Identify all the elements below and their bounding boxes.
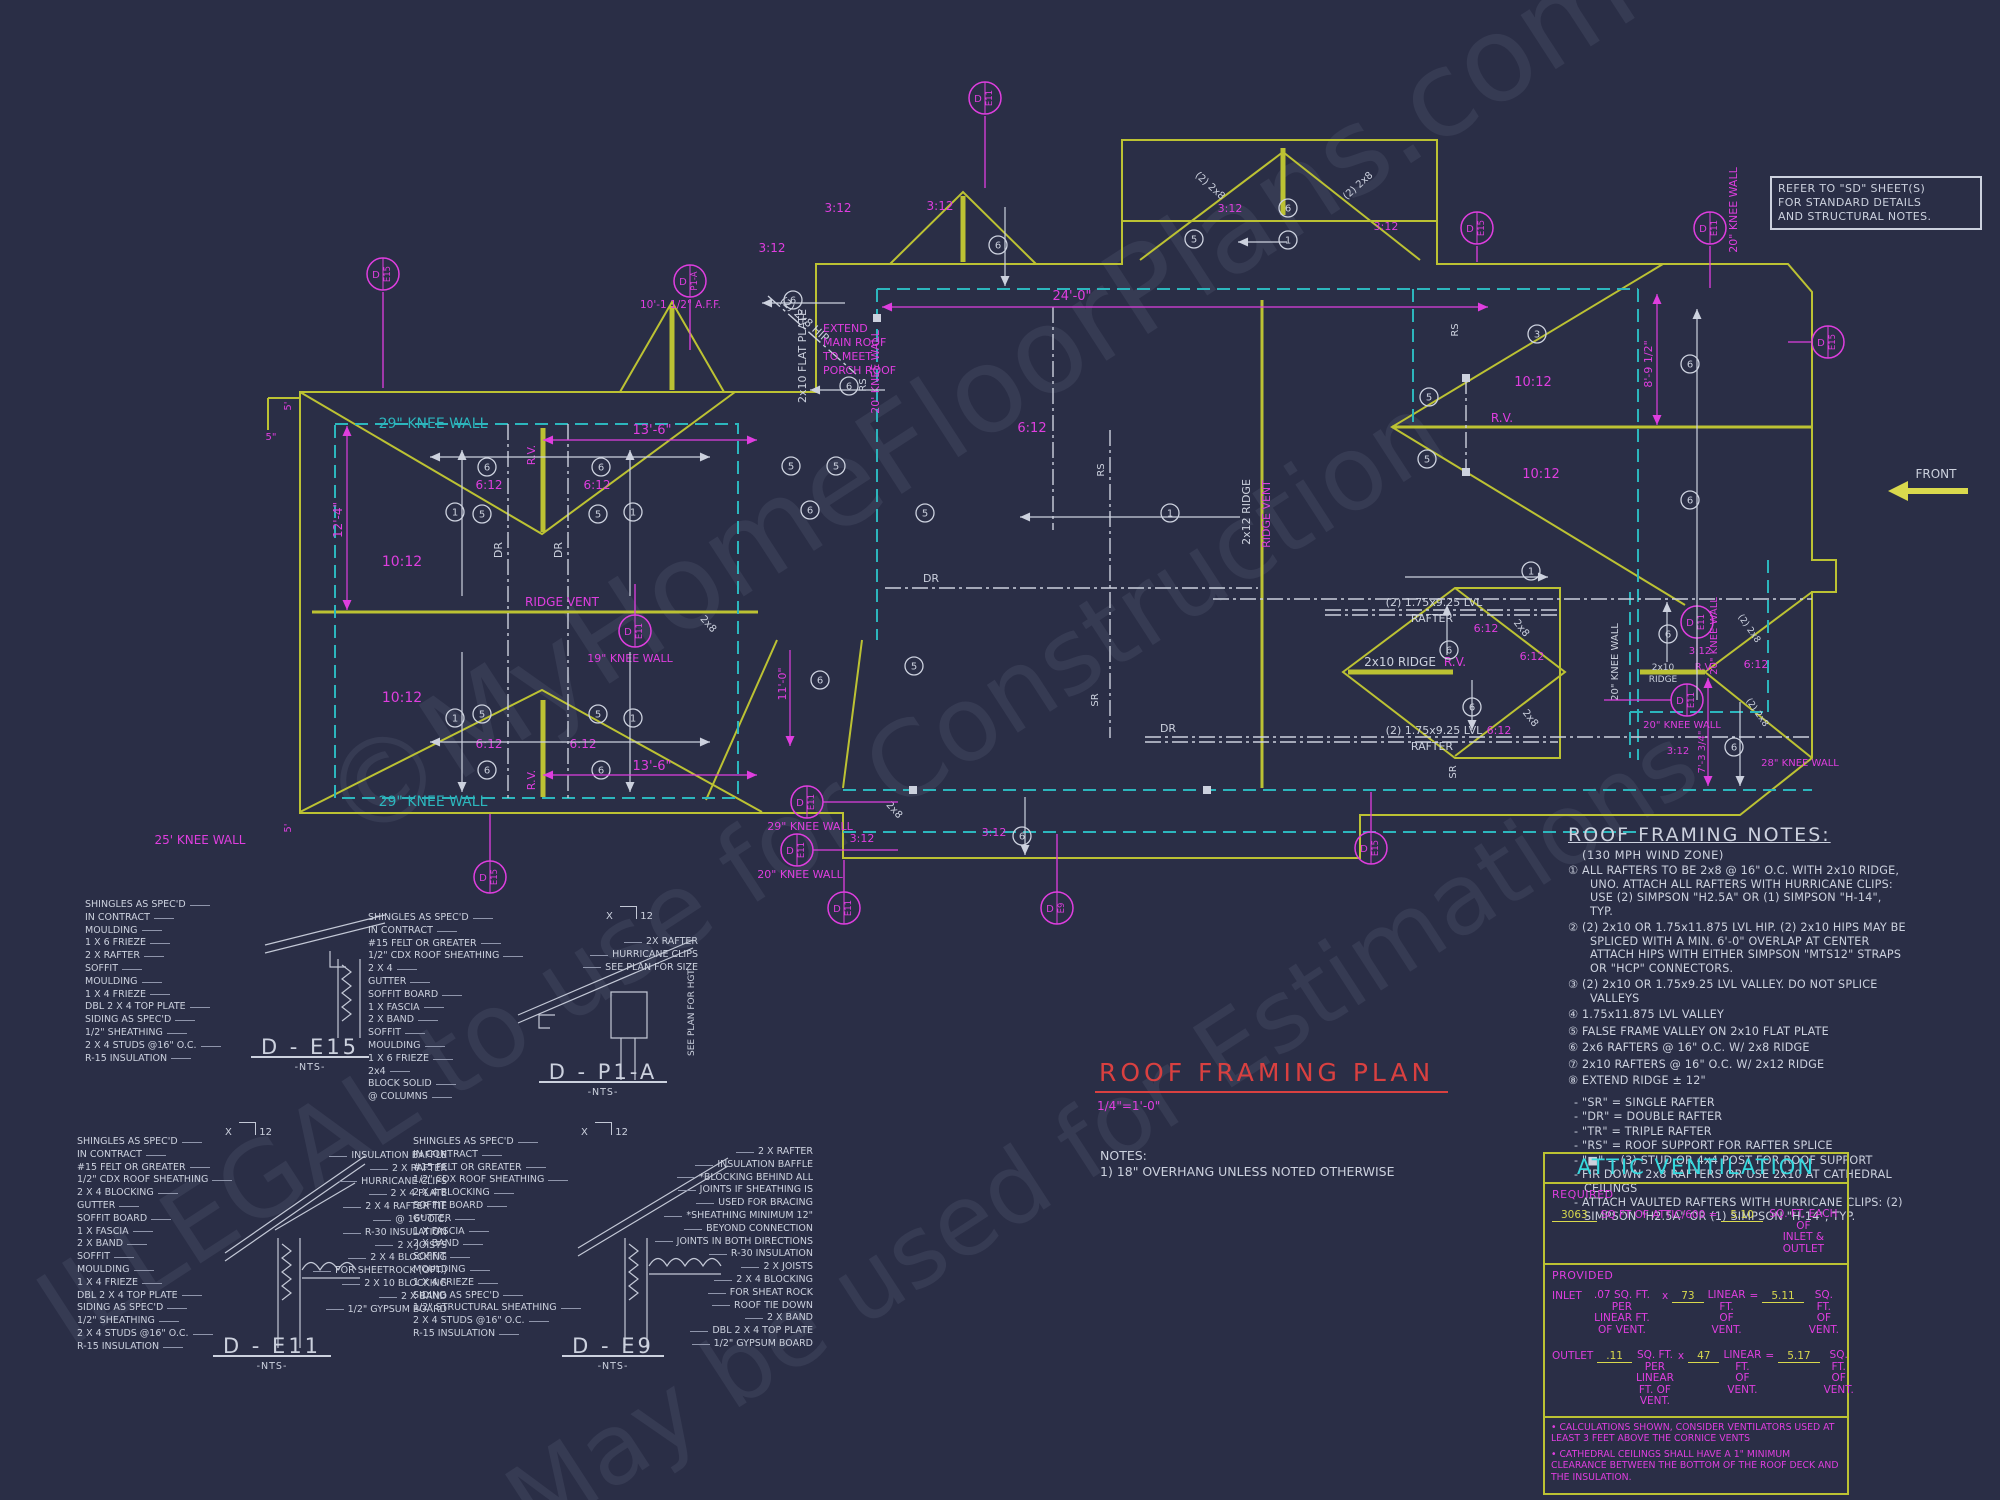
plan-label: 25' KNEE WALL: [155, 833, 246, 847]
detail-label: 1/2" STRUCTURAL SHEATHING: [413, 1302, 581, 1315]
detail-title: D - E9: [562, 1340, 664, 1357]
plan-label: RIDGE VENT: [525, 595, 600, 609]
detail-bubble-code: E15: [490, 869, 500, 885]
slope-rise: 12: [259, 1127, 272, 1138]
detail-label: 1 X FASCIA: [413, 1226, 581, 1239]
detail-label: R-15 INSULATION: [85, 1053, 221, 1066]
attic-operator: x: [1678, 1350, 1684, 1362]
plan-label: 20" KNEE WALL: [1610, 623, 1621, 701]
framing-note-item: ④ 1.75x11.875 LVL VALLEY: [1568, 1008, 1908, 1022]
roof-post-marker: [1203, 786, 1211, 794]
detail-bubble-code: E15: [1371, 840, 1381, 856]
note-badge-number: 6: [807, 506, 813, 517]
detail-bubble-letter: D: [624, 627, 632, 638]
framing-note-item: ⑥ 2x6 RAFTERS @ 16" O.C. W/ 2x8 RIDGE: [1568, 1041, 1908, 1055]
detail-label: DBL 2 X 4 TOP PLATE: [85, 1001, 221, 1014]
slope-x: X: [225, 1127, 232, 1138]
detail-bubble-letter: D: [1699, 224, 1707, 235]
attic-inlet-result: 5.11: [1762, 1290, 1803, 1303]
detail-label: 2x4: [368, 1066, 523, 1079]
plan-label: 12'-4": [331, 502, 345, 538]
detail-label: MOULDING: [413, 1264, 581, 1277]
note-badge-number: 6: [1731, 743, 1737, 754]
detail-label: SHINGLES AS SPEC'D: [77, 1136, 232, 1149]
detail-label: 2 X 4 STUDS @16" O.C.: [77, 1328, 232, 1341]
attic-outlet-rate: .11: [1597, 1350, 1632, 1363]
plan-label: 13'-6": [632, 423, 671, 438]
detail-label: 1 X FASCIA: [77, 1226, 232, 1239]
arrow-head: [762, 298, 772, 307]
note-badge-number: 6: [1019, 832, 1025, 843]
detail-label: 2 X 4 BLOCKING: [77, 1187, 232, 1200]
detail-bubble-letter: D: [372, 270, 380, 281]
attic-inlet-text: LINEAR FT.: [1708, 1289, 1746, 1313]
note-badge-number: 5: [922, 509, 928, 520]
detail-bubble-code: E11: [985, 90, 995, 106]
attic-outlet-text: OF VENT.: [1824, 1372, 1854, 1396]
detail-label: GUTTER: [77, 1200, 232, 1213]
arrow-head: [1020, 845, 1029, 855]
plan-notes-heading: NOTES:: [1100, 1148, 1395, 1164]
plan-label: (2) 1.75x9.25 LVL: [1386, 724, 1484, 737]
plan-label: 3:12: [982, 826, 1007, 839]
plan-title: ROOF FRAMING PLAN: [1095, 1058, 1448, 1093]
detail-label: SIDING AS SPEC'D: [413, 1290, 581, 1303]
plan-label: PORCH ROOF: [823, 364, 896, 377]
attic-required-result: 5.10: [1721, 1209, 1762, 1222]
attic-outlet-text: SQ. FT.: [1830, 1349, 1848, 1373]
detail-label: 2 X 4 STUDS @16" O.C.: [413, 1315, 581, 1328]
detail-label: JOINTS IN BOTH DIRECTIONS: [655, 1236, 813, 1249]
plan-label: 10'-1 1/2" A.F.F.: [640, 299, 721, 311]
arrow-head: [1735, 776, 1744, 786]
detail-label: SOFFIT BOARD: [368, 989, 523, 1002]
arrow-head: [625, 450, 634, 460]
detail-bubble-code: E11: [1687, 692, 1697, 708]
note-badge-number: 6: [484, 766, 490, 777]
arrow-head: [625, 782, 634, 792]
note-badge-number: 6: [846, 382, 852, 393]
arrow-head: [342, 600, 351, 610]
note-badge-number: 5: [595, 710, 601, 721]
plan-label: 11'-0": [776, 667, 789, 700]
front-marker: FRONT: [1888, 467, 1968, 501]
note-badge-number: 5: [595, 510, 601, 521]
note-line: REFER TO "SD" SHEET(S): [1778, 182, 1974, 196]
plan-label: DR: [492, 542, 505, 558]
plan-label: 3:12: [1689, 646, 1711, 657]
note-line: FOR STANDARD DETAILS: [1778, 196, 1974, 210]
attic-outlet-label: OUTLET: [1552, 1350, 1593, 1362]
detail-bubble-letter: D: [1360, 844, 1368, 855]
framing-note-legend-item: - "TR" = TRIPLE RAFTER: [1568, 1125, 1908, 1139]
detail-bubble-letter: D: [833, 904, 841, 915]
arrow-head: [1652, 294, 1661, 304]
plan-label: DR: [1160, 722, 1176, 735]
plan-label: 10:12: [382, 690, 422, 706]
detail-label: 2 X 4: [368, 963, 523, 976]
plan-label: 29" KNEE WALL: [379, 794, 488, 810]
arrow-head: [700, 737, 710, 746]
detail-d-e11: SHINGLES AS SPEC'DIN CONTRACT#15 FELT OR…: [77, 1122, 447, 1392]
framing-note-item: ① ALL RAFTERS TO BE 2x8 @ 16" O.C. WITH …: [1568, 864, 1908, 918]
detail-label: 1 X 6 FRIEZE: [85, 937, 221, 950]
attic-required-section: REQUIRED 3063 SQ FT OF ATTIC/600 = 5.10 …: [1545, 1184, 1847, 1265]
detail-bubble-code: E11: [1710, 220, 1720, 236]
detail-label: SOFFIT: [368, 1027, 523, 1040]
note-badge-number: 5: [833, 462, 839, 473]
attic-outlet-value: 47: [1688, 1350, 1719, 1363]
detail-label: GUTTER: [368, 976, 523, 989]
arrow-head: [430, 452, 440, 461]
plan-label: 6:12: [476, 737, 503, 751]
detail-label: IN CONTRACT: [368, 925, 523, 938]
note-badge-number: 5: [1424, 455, 1430, 466]
detail-label: BLOCK SOLID: [368, 1078, 523, 1091]
note-badge-number: 6: [1665, 630, 1671, 641]
plan-label: 3:12: [825, 201, 852, 215]
detail-label: 1/2" CDX ROOF SHEATHING: [413, 1174, 581, 1187]
detail-bubble-letter: D: [1686, 618, 1694, 629]
detail-label: FOR SHEAT ROCK: [655, 1287, 813, 1300]
attic-inlet-text: LINEAR FT. OF VENT.: [1594, 1312, 1650, 1336]
attic-footnotes: • CALCULATIONS SHOWN, CONSIDER VENTILATO…: [1545, 1418, 1847, 1494]
note-badge-number: 1: [1285, 236, 1291, 247]
plan-label: 28" KNEE WALL: [1761, 758, 1839, 769]
attic-provided-label: PROVIDED: [1552, 1269, 1840, 1282]
detail-bubble-letter: D: [1817, 338, 1825, 349]
detail-vertical-label: SEE PLAN FOR HGT.: [686, 968, 699, 1056]
detail-bubble-code: E11: [844, 900, 854, 916]
plan-label: 3:12: [850, 832, 875, 845]
detail-label: 2 X RAFTER: [655, 1146, 813, 1159]
detail-bubble-letter: D: [796, 798, 804, 809]
note-badge-number: 6: [1285, 204, 1291, 215]
plan-label: 10:12: [382, 554, 422, 570]
note-badge-number: 5: [479, 710, 485, 721]
plan-label: 3:12: [927, 199, 954, 213]
plan-label: RS: [1096, 463, 1107, 476]
plan-label: R.V.: [525, 770, 538, 790]
plan-label: RIDGE VENT: [1260, 480, 1273, 548]
plan-label: 2x10 FLAT PLATE: [796, 309, 809, 403]
plan-label: (2) 1.75x9.25 LVL: [1386, 596, 1484, 609]
note-badge-number: 5: [1191, 235, 1197, 246]
detail-scale: -NTS-: [523, 1087, 683, 1100]
detail-label: #15 FELT OR GREATER: [413, 1162, 581, 1175]
plan-label: 20" KNEE WALL: [1643, 720, 1721, 731]
detail-label: #15 FELT OR GREATER: [368, 938, 523, 951]
attic-footnote: • CATHEDRAL CEILINGS SHALL HAVE A 1" MIN…: [1551, 1449, 1841, 1484]
arrow-head: [1538, 572, 1548, 581]
slope-rise: 12: [615, 1127, 628, 1138]
plan-label: 20" KNEE WALL: [1727, 166, 1740, 252]
detail-bubble-code: E9: [1057, 903, 1067, 914]
framing-note-legend-item: - "DR" = DOUBLE RAFTER: [1568, 1110, 1908, 1124]
front-arrow-head: [1888, 481, 1908, 501]
plan-label: 20" KNEE WALL: [757, 868, 843, 881]
plan-label: 3:12: [1218, 202, 1243, 215]
detail-bubble-letter: D: [786, 846, 794, 857]
detail-bubble-code: E11: [635, 623, 645, 639]
detail-label: 1 X FASCIA: [368, 1002, 523, 1015]
attic-inlet-text: OF VENT.: [1711, 1312, 1741, 1336]
attic-required-text: SQ. FT. EACH OF: [1769, 1208, 1837, 1232]
detail-label: SIDING AS SPEC'D: [77, 1302, 232, 1315]
detail-label: 2 X BAND: [413, 1238, 581, 1251]
attic-inlet-text: SQ. FT.: [1815, 1289, 1833, 1313]
detail-bubble-letter: D: [679, 277, 687, 288]
detail-bubble-code: P1-A: [690, 271, 700, 290]
plan-notes-line: 1) 18" OVERHANG UNLESS NOTED OTHERWISE: [1100, 1164, 1395, 1180]
detail-label: SHINGLES AS SPEC'D: [368, 912, 523, 925]
plan-label: RAFTER: [1411, 740, 1454, 753]
plan-label: 2x8: [1511, 618, 1531, 639]
arrow-head: [1662, 602, 1671, 612]
detail-label: 1 X 6 FRIEZE: [368, 1053, 523, 1066]
framing-note-legend-item: - "RS" = ROOF SUPPORT FOR RAFTER SPLICE: [1568, 1139, 1908, 1153]
standard-details-note: REFER TO "SD" SHEET(S) FOR STANDARD DETA…: [1770, 176, 1982, 230]
framing-note-legend-item: - "SR" = SINGLE RAFTER: [1568, 1096, 1908, 1110]
detail-bubble-letter: D: [974, 94, 982, 105]
detail-label: SOFFIT: [77, 1251, 232, 1264]
plan-label: 3:12: [1667, 746, 1689, 757]
plan-label: RS: [1450, 323, 1461, 336]
sheet: ©MyHomeFloorPlans.com ILLEGAL to use for…: [0, 0, 2000, 1500]
detail-bubble-letter: D: [1046, 904, 1054, 915]
note-badge-number: 3: [1534, 330, 1540, 341]
arrow-head: [785, 736, 794, 746]
attic-required-text: INLET & OUTLET: [1783, 1231, 1824, 1255]
roof-post-marker: [1462, 374, 1470, 382]
detail-label: #15 FELT OR GREATER: [77, 1162, 232, 1175]
roof-post-marker: [873, 314, 881, 322]
detail-label: 2 X JOISTS: [655, 1261, 813, 1274]
note-line: AND STRUCTURAL NOTES.: [1778, 210, 1974, 224]
detail-label: 2 X BAND: [655, 1312, 813, 1325]
note-badge-number: 5: [479, 510, 485, 521]
plan-label: 2x8: [1520, 708, 1540, 729]
detail-label: 2 X 4 STUDS @16" O.C.: [85, 1040, 221, 1053]
attic-ventilation-table: ATTIC VENTILATION REQUIRED 3063 SQ FT OF…: [1543, 1152, 1849, 1495]
detail-label: DBL 2 X 4 TOP PLATE: [77, 1290, 232, 1303]
plan-label: 29" KNEE WALL: [767, 820, 853, 833]
detail-bubble-code: E11: [1697, 614, 1707, 630]
plan-label: 8'-9 1/2": [1642, 340, 1655, 387]
detail-label: GUTTER: [413, 1213, 581, 1226]
plan-label: 3:12: [759, 241, 786, 255]
attic-outlet-text: OF VENT.: [1727, 1372, 1757, 1396]
detail-bubble-letter: D: [1676, 696, 1684, 707]
detail-label: SOFFIT: [413, 1251, 581, 1264]
detail-d-e9: SHINGLES AS SPEC'DIN CONTRACT#15 FELT OR…: [413, 1122, 813, 1392]
plan-label: R.V.: [1491, 411, 1513, 425]
plan-label: 6:12: [1017, 421, 1046, 436]
plan-label: SR: [1448, 765, 1459, 778]
attic-required-area: 3063: [1552, 1209, 1597, 1222]
detail-label: 1 X 4 FRIEZE: [413, 1277, 581, 1290]
framing-note-item: ③ (2) 2x10 OR 1.75x9.25 LVL VALLEY. DO N…: [1568, 978, 1908, 1005]
attic-operator: x: [1662, 1290, 1668, 1302]
note-badge-number: 6: [790, 296, 796, 307]
plan-label: 6:12: [1474, 622, 1499, 635]
note-badge-number: 5: [1426, 393, 1432, 404]
plan-label: R.V.: [525, 445, 538, 465]
detail-scale: -NTS-: [533, 1361, 693, 1374]
arrow-head: [747, 770, 757, 779]
detail-bubble-code: E15: [1477, 220, 1487, 236]
attic-outlet-text: SQ. FT. PER: [1637, 1349, 1673, 1373]
arrow-head: [1652, 415, 1661, 425]
framing-note-item: ⑧ EXTEND RIDGE ± 12": [1568, 1074, 1908, 1088]
detail-label: 2 X 4 BLOCKING: [413, 1187, 581, 1200]
plan-label: (2) 2x8: [1743, 697, 1770, 729]
attic-inlet-text: .07 SQ. FT. PER: [1594, 1289, 1650, 1313]
detail-bubble-letter: D: [479, 873, 487, 884]
slope-x: X: [581, 1127, 588, 1138]
detail-label: IN CONTRACT: [85, 912, 221, 925]
plan-label: 6:12: [1520, 650, 1545, 663]
attic-inlet-label: INLET: [1552, 1290, 1582, 1302]
detail-bubble-code: E11: [797, 842, 807, 858]
detail-label: BEYOND CONNECTION: [655, 1223, 813, 1236]
attic-inlet-value: 73: [1672, 1290, 1703, 1303]
plan-label: 10:12: [1514, 375, 1551, 390]
attic-required-label: REQUIRED: [1552, 1188, 1840, 1201]
plan-label: 6:12: [1487, 724, 1512, 737]
detail-label: MOULDING: [85, 976, 221, 989]
note-badge-number: 6: [484, 463, 490, 474]
note-badge-number: 1: [630, 714, 636, 725]
detail-label: @ COLUMNS: [368, 1091, 523, 1104]
roof-post-marker: [1462, 468, 1470, 476]
framing-notes-title: ROOF FRAMING NOTES:: [1568, 824, 1908, 846]
note-badge-number: 1: [452, 508, 458, 519]
detail-label: MOULDING: [368, 1040, 523, 1053]
note-badge-number: 6: [1687, 496, 1693, 507]
detail-label: 2 X BAND: [368, 1014, 523, 1027]
plan-label: 3:12: [1374, 220, 1399, 233]
plan-label: 24'-0": [1052, 289, 1091, 304]
detail-label: 1/2" SHEATHING: [85, 1027, 221, 1040]
attic-outlet-result: 5.17: [1778, 1350, 1819, 1363]
detail-label: HURRICANE CLIPS: [583, 949, 698, 962]
detail-scale: -NTS-: [192, 1361, 352, 1374]
arrow-head: [342, 426, 351, 436]
detail-label: SOFFIT BOARD: [77, 1213, 232, 1226]
arrow-head: [1020, 512, 1030, 521]
note-badge-number: 5: [911, 662, 917, 673]
attic-footnote: • CALCULATIONS SHOWN, CONSIDER VENTILATO…: [1551, 1422, 1841, 1445]
detail-bubble-code: E15: [383, 266, 393, 282]
detail-label: R-30 INSULATION: [655, 1248, 813, 1261]
plan-label: 5': [283, 401, 294, 410]
arrow-head: [457, 450, 466, 460]
detail-label: SHINGLES AS SPEC'D: [413, 1136, 581, 1149]
detail-label: SOFFIT: [85, 963, 221, 976]
note-badge-number: 6: [995, 241, 1001, 252]
attic-provided-section: PROVIDED INLET .07 SQ. FT. PERLINEAR FT.…: [1545, 1265, 1847, 1418]
framing-notes-subtitle: (130 MPH WIND ZONE): [1582, 848, 1908, 862]
detail-label: SHINGLES AS SPEC'D: [85, 899, 221, 912]
detail-label: MOULDING: [77, 1264, 232, 1277]
detail-bubble-letter: D: [1466, 224, 1474, 235]
plan-label: 2x12 RIDGE: [1240, 479, 1253, 545]
detail-label: JOINTS IF SHEATHING IS: [655, 1184, 813, 1197]
detail-label: MOULDING: [85, 925, 221, 938]
plan-label: 6:12: [1744, 658, 1769, 671]
attic-title: ATTIC VENTILATION: [1545, 1154, 1847, 1184]
detail-label: 1/2" CDX ROOF SHEATHING: [368, 950, 523, 963]
plan-label: 6:12: [570, 737, 597, 751]
framing-note-item: ⑦ 2x10 RAFTERS @ 16" O.C. W/ 2x12 RIDGE: [1568, 1058, 1908, 1072]
attic-outlet-text: LINEAR FT. OF VENT.: [1636, 1372, 1674, 1407]
detail-label: DBL 2 X 4 TOP PLATE: [655, 1325, 813, 1338]
plan-label: RIDGE: [1649, 675, 1678, 685]
plan-label: 5": [266, 432, 277, 443]
arrow-head: [1692, 309, 1701, 319]
plan-label: 20' KNEE WALL: [869, 329, 882, 413]
plan-label: DR: [552, 542, 565, 558]
detail-bubble-code: E11: [807, 794, 817, 810]
note-badge-number: 6: [817, 676, 823, 687]
framing-note-item: ② (2) 2x10 OR 1.75x11.875 LVL HIP. (2) 2…: [1568, 921, 1908, 975]
plan-label: EXTEND: [823, 322, 868, 335]
attic-operator: =: [1765, 1350, 1774, 1362]
detail-label: SEE PLAN FOR SIZE: [583, 962, 698, 975]
plan-scale: 1/4"=1'-0": [1097, 1099, 1448, 1113]
detail-label: 2X RAFTER: [583, 936, 698, 949]
plan-label: 2x10: [1652, 663, 1675, 673]
detail-label: INSULATION BAFFLE: [655, 1159, 813, 1172]
detail-label: ROOF TIE DOWN: [655, 1300, 813, 1313]
arrow-head: [700, 452, 710, 461]
attic-operator: =: [1750, 1290, 1759, 1302]
plan-label: 5': [283, 823, 294, 832]
detail-d-p1-a: SHINGLES AS SPEC'DIN CONTRACT#15 FELT OR…: [368, 906, 698, 1116]
arrow-head: [1478, 302, 1488, 311]
arrow-head: [747, 435, 757, 444]
detail-label: 1/2" CDX ROOF SHEATHING: [77, 1174, 232, 1187]
arrow-head: [1000, 276, 1009, 286]
plan-label: 6:12: [584, 478, 611, 492]
front-label: FRONT: [1916, 467, 1958, 481]
detail-label: USED FOR BRACING: [655, 1197, 813, 1210]
detail-label: 1/2" SHEATHING: [77, 1315, 232, 1328]
detail-label: 2 X BAND: [77, 1238, 232, 1251]
attic-inlet-text: OF VENT.: [1809, 1312, 1839, 1336]
plan-notes: NOTES: 1) 18" OVERHANG UNLESS NOTED OTHE…: [1100, 1148, 1395, 1180]
detail-label: SIDING AS SPEC'D: [85, 1014, 221, 1027]
detail-scale: -NTS-: [235, 1062, 385, 1075]
detail-label: 1 X 4 FRIEZE: [85, 989, 221, 1002]
roof-post-marker: [909, 786, 917, 794]
detail-bubble-code: E15: [1828, 334, 1838, 350]
detail-label: 1 X 4 FRIEZE: [77, 1277, 232, 1290]
detail-title: D - P1-A: [539, 1066, 668, 1083]
note-badge-number: 1: [1528, 567, 1534, 578]
detail-label: IN CONTRACT: [413, 1149, 581, 1162]
note-badge-number: 1: [1167, 509, 1173, 520]
detail-label: R-15 INSULATION: [413, 1328, 581, 1341]
plan-label: 6:12: [476, 478, 503, 492]
plan-label: 13'-6": [632, 759, 671, 774]
plan-label: SR: [1090, 693, 1101, 706]
detail-title: D - E11: [213, 1340, 331, 1357]
note-badge-number: 6: [1687, 360, 1693, 371]
arrow-head: [882, 302, 892, 311]
plan-label: DR: [923, 572, 939, 585]
